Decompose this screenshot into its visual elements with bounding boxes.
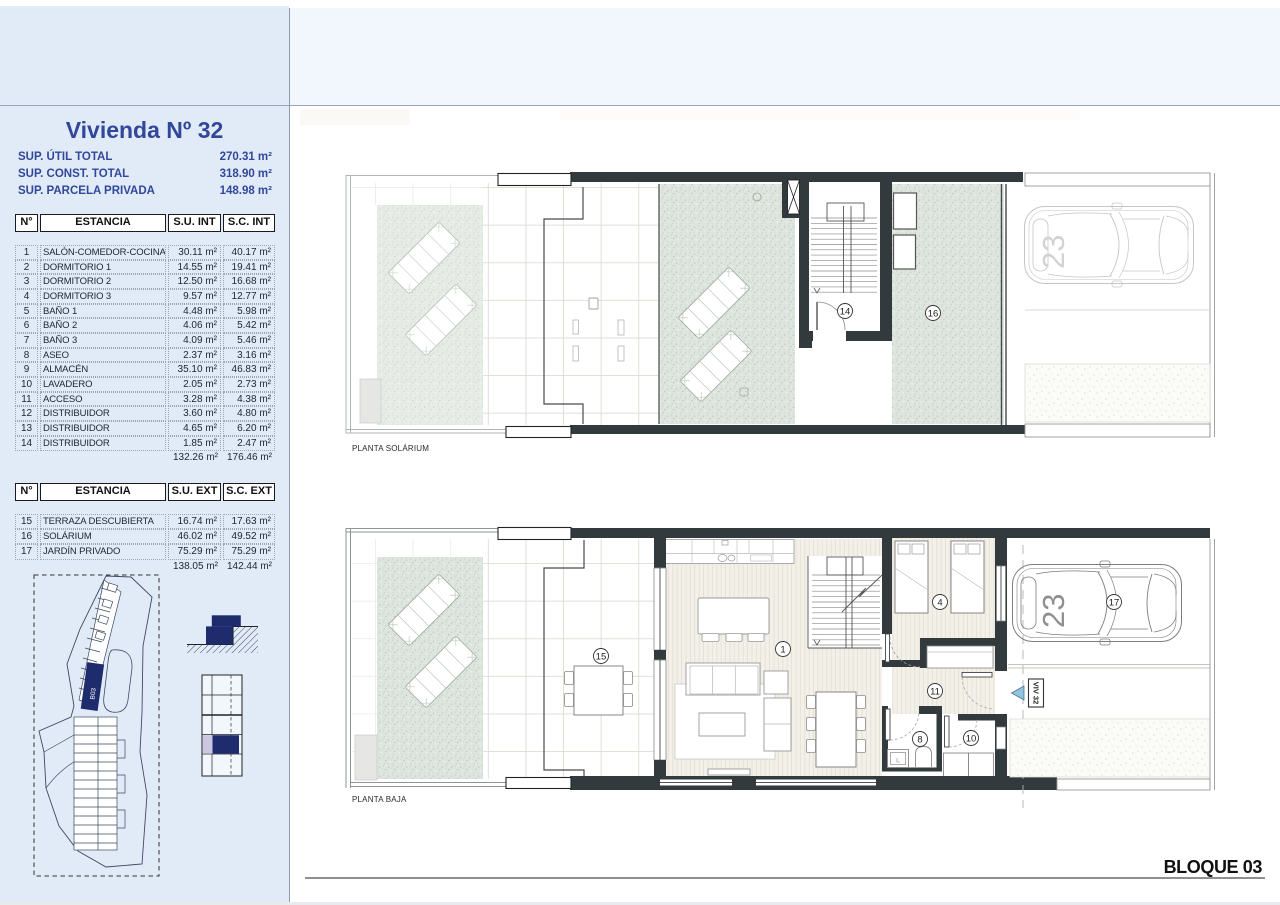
svg-text:4: 4	[937, 598, 942, 609]
svg-text:23: 23	[1036, 594, 1071, 628]
svg-text:11: 11	[930, 687, 940, 698]
svg-text:16: 16	[928, 309, 939, 320]
svg-text:8: 8	[917, 735, 922, 746]
svg-text:23: 23	[1036, 235, 1071, 269]
svg-text:1: 1	[780, 645, 785, 656]
svg-text:10: 10	[966, 734, 977, 745]
svg-text:PLANTA BAJA: PLANTA BAJA	[352, 795, 407, 804]
svg-text:17: 17	[1109, 598, 1120, 609]
svg-text:PLANTA SOLÁRIUM: PLANTA SOLÁRIUM	[352, 444, 429, 453]
svg-text:14: 14	[840, 307, 851, 318]
svg-text:VIV 32: VIV 32	[1032, 682, 1041, 705]
svg-text:15: 15	[596, 652, 607, 663]
